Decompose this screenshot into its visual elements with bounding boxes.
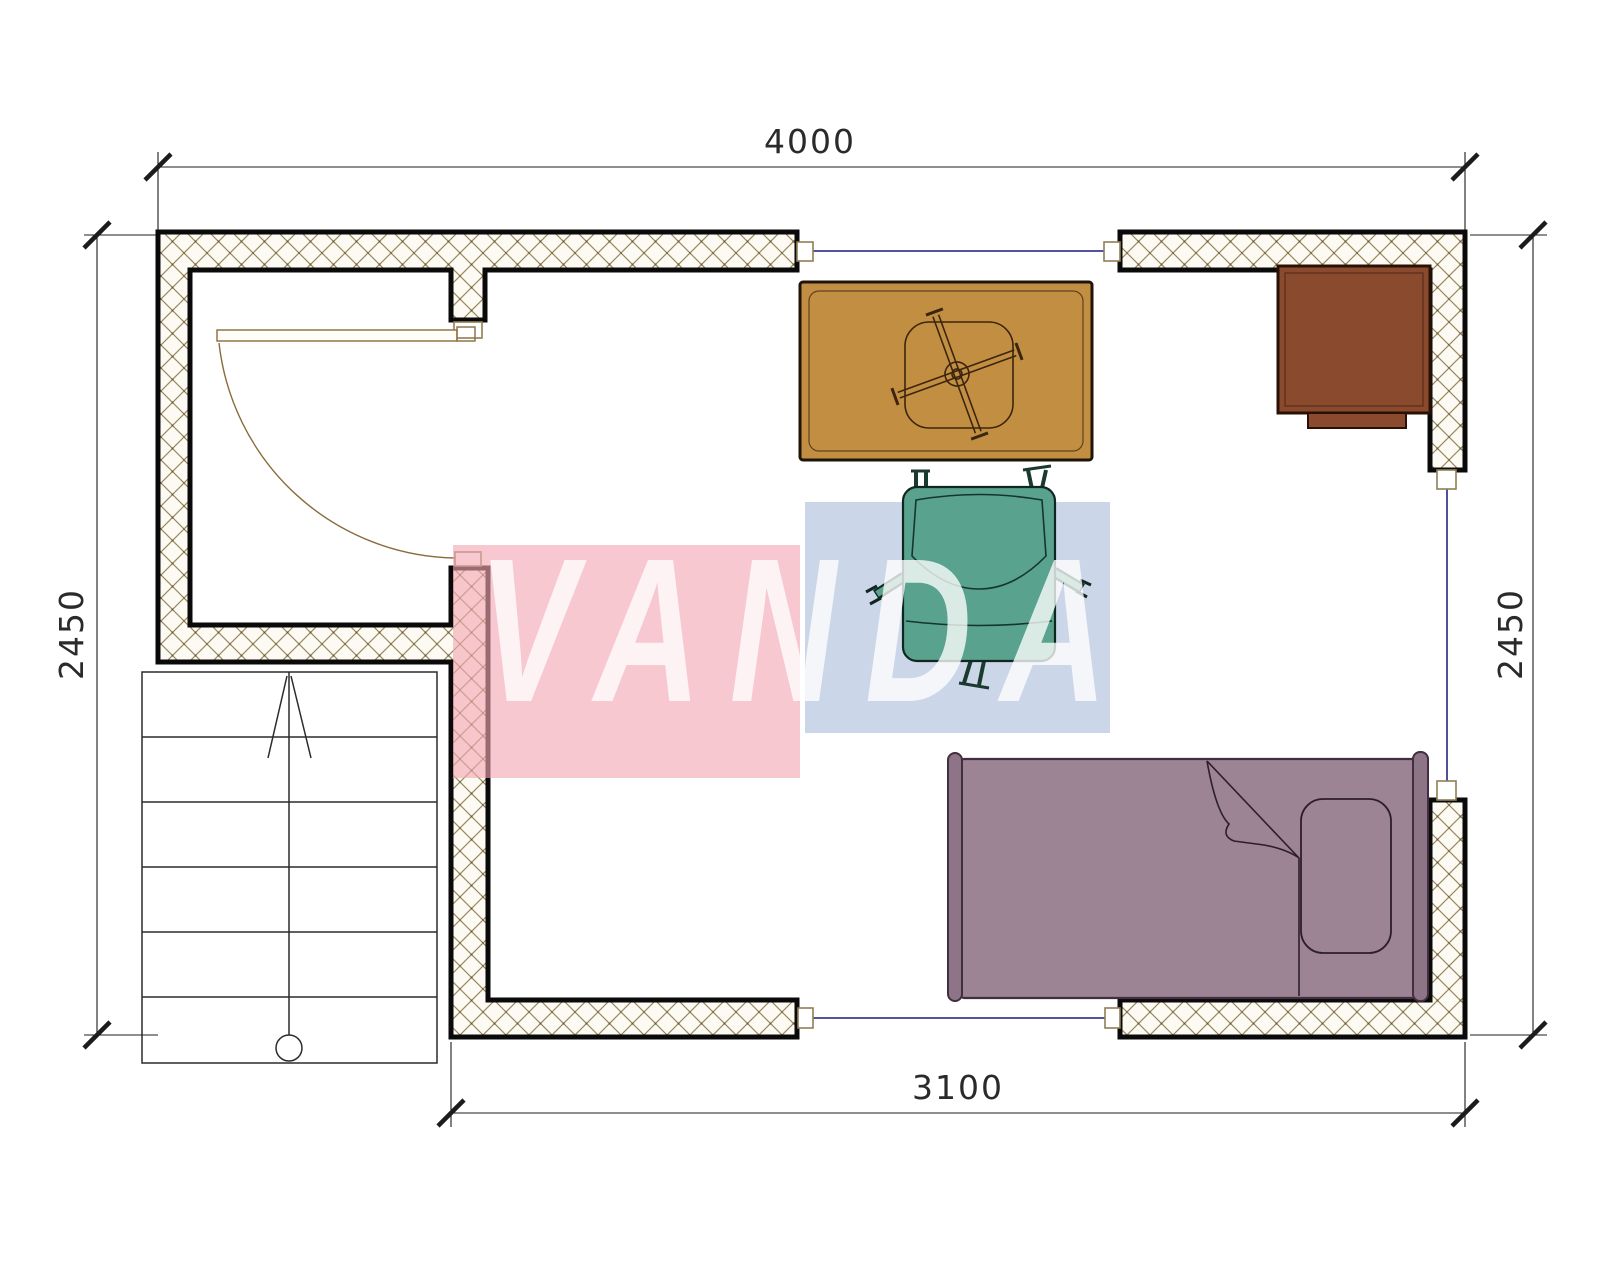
dimension-right-label: 2450 bbox=[1491, 549, 1531, 719]
single-bed bbox=[948, 752, 1428, 1001]
cabinet-base-stub bbox=[1308, 413, 1406, 428]
door-leaf bbox=[217, 330, 457, 341]
cabinet bbox=[1278, 266, 1430, 428]
bed-headboard bbox=[1413, 752, 1428, 1001]
cabinet-body bbox=[1278, 266, 1430, 413]
bed-pillow bbox=[1301, 799, 1391, 953]
door-swing-arc bbox=[219, 343, 455, 558]
dimension-top-label: 4000 bbox=[725, 122, 895, 162]
floor-plan-canvas: 4000 3100 2450 2450 VANDA bbox=[0, 0, 1600, 1280]
swing-door bbox=[217, 322, 482, 566]
door-jamb-cap-top bbox=[454, 322, 482, 338]
chair-body bbox=[903, 487, 1055, 661]
dimension-top-lines bbox=[145, 152, 1478, 230]
watermark-pink-block bbox=[453, 545, 800, 778]
staircase-start-marker bbox=[276, 1035, 302, 1061]
dimension-left-label: 2450 bbox=[52, 549, 92, 719]
floor-plan-drawing bbox=[0, 0, 1600, 1280]
dimension-bottom-label: 3100 bbox=[873, 1068, 1043, 1108]
bed-footboard bbox=[948, 753, 962, 1001]
rug-with-pedestal-table bbox=[800, 282, 1092, 460]
dimension-left-lines bbox=[84, 222, 158, 1048]
staircase bbox=[142, 672, 437, 1063]
